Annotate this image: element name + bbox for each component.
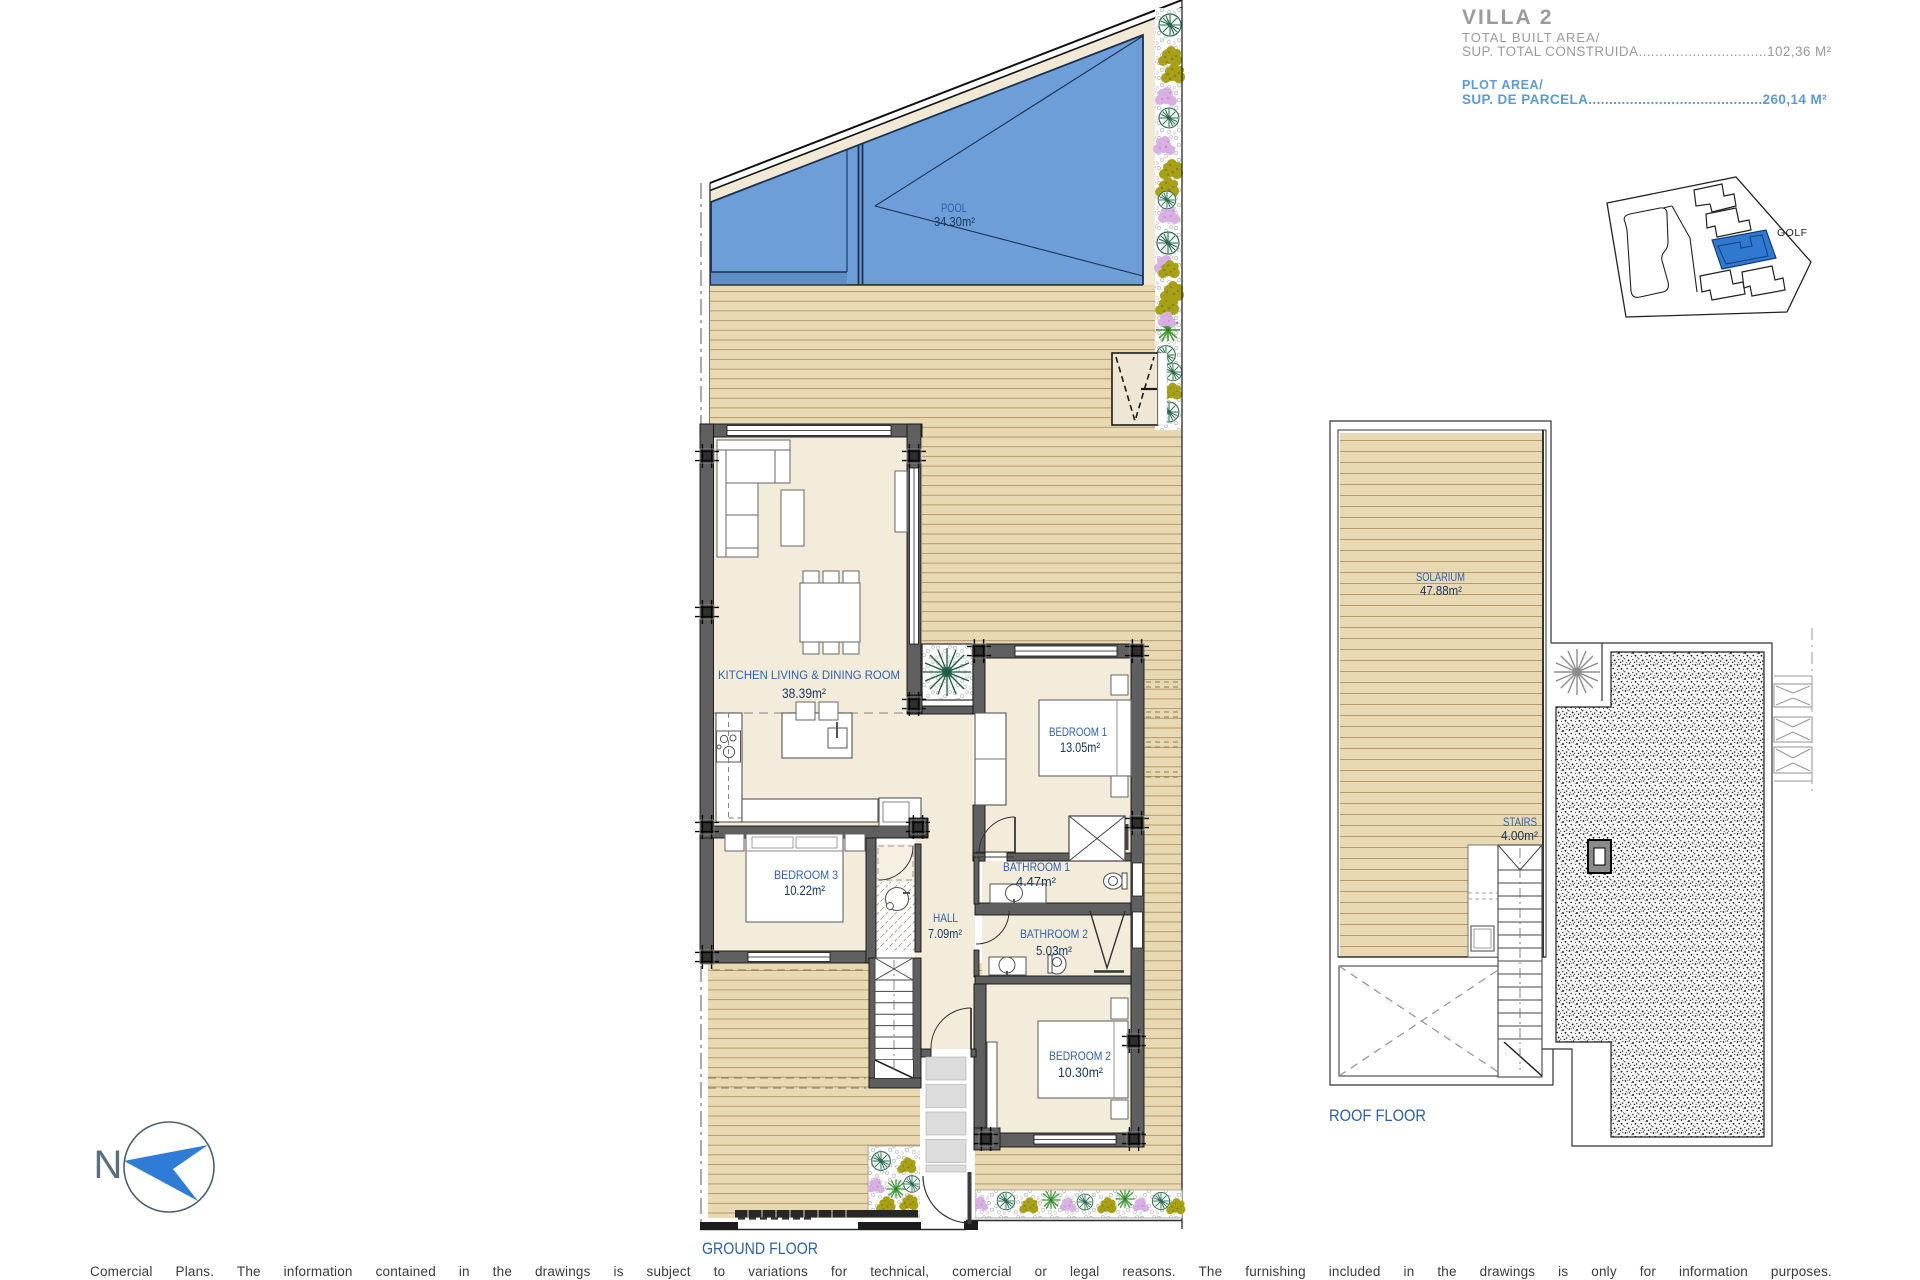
svg-text:BATHROOM 1: BATHROOM 1: [1003, 860, 1070, 874]
svg-text:POOL: POOL: [941, 201, 967, 215]
svg-text:10.22m²: 10.22m²: [784, 883, 825, 898]
svg-text:KITCHEN LIVING & DINING R: KITCHEN LIVING & DINING ROOM: [718, 668, 900, 682]
svg-text:13.05m²: 13.05m²: [1060, 740, 1100, 755]
svg-text:ROOF FLOOR: ROOF FLOOR: [1329, 1106, 1426, 1125]
svg-text:5.03m²: 5.03m²: [1036, 943, 1073, 958]
svg-text:47.88m²: 47.88m²: [1420, 583, 1463, 598]
svg-text:10.30m²: 10.30m²: [1058, 1065, 1103, 1080]
svg-text:N: N: [94, 1143, 123, 1187]
svg-text:GOLF: GOLF: [1777, 227, 1808, 239]
svg-text:GROUND FLOOR: GROUND FLOOR: [702, 1239, 818, 1258]
svg-text:SOLARIUM: SOLARIUM: [1416, 570, 1465, 584]
svg-text:4.47m²: 4.47m²: [1016, 874, 1057, 889]
svg-text:7.09m²: 7.09m²: [928, 926, 963, 941]
svg-text:34.30m²: 34.30m²: [934, 214, 976, 229]
svg-text:38.39m²: 38.39m²: [782, 686, 826, 701]
svg-text:BEDROOM 2: BEDROOM 2: [1049, 1049, 1111, 1063]
svg-text:BEDROOM 3: BEDROOM 3: [774, 868, 838, 882]
svg-text:HALL: HALL: [933, 911, 958, 925]
svg-text:4.00m²: 4.00m²: [1501, 829, 1538, 843]
svg-text:STAIRS: STAIRS: [1503, 817, 1537, 829]
svg-text:BEDROOM 1: BEDROOM 1: [1049, 725, 1107, 739]
svg-text:BATHROOM 2: BATHROOM 2: [1020, 927, 1088, 941]
